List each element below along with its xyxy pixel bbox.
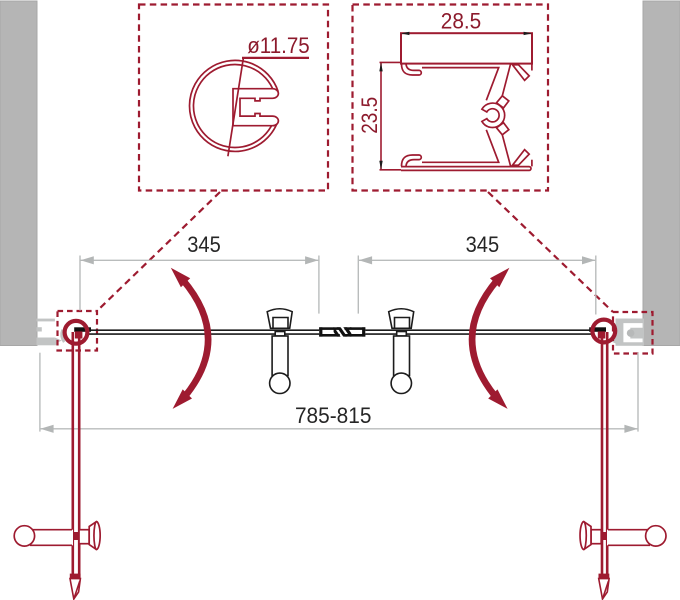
svg-text:23.5: 23.5: [357, 97, 382, 134]
svg-text:28.5: 28.5: [441, 8, 482, 33]
svg-text:345: 345: [466, 232, 500, 257]
svg-text:345: 345: [187, 232, 221, 257]
svg-text:ø11.75: ø11.75: [247, 33, 310, 58]
svg-text:785-815: 785-815: [295, 403, 372, 428]
